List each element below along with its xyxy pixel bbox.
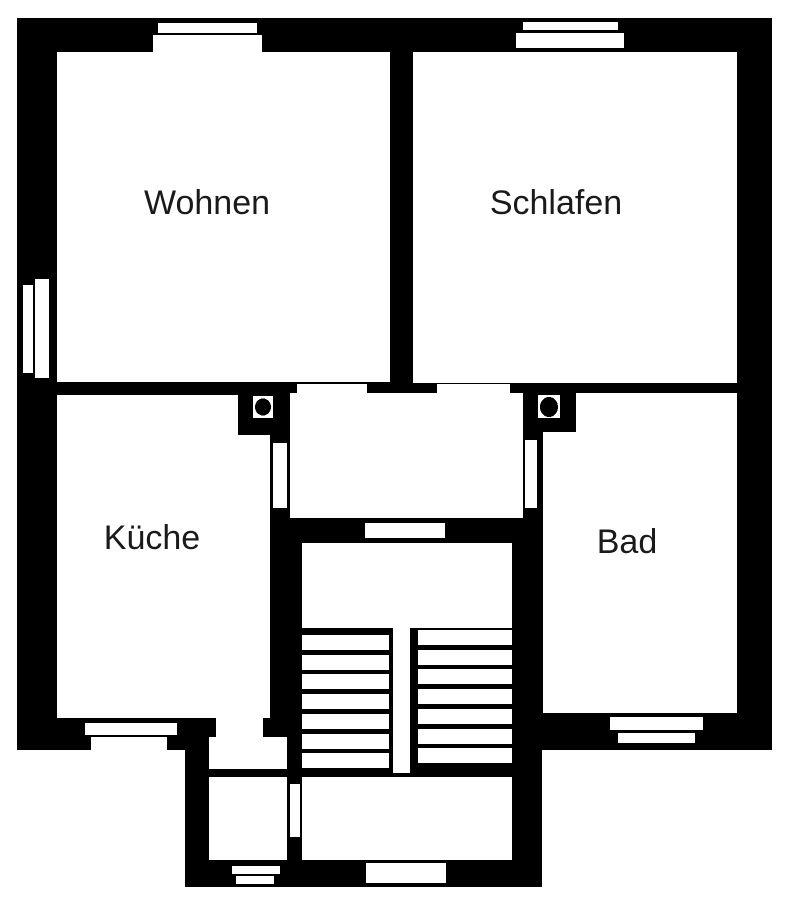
stair-flight-right-tread-1	[418, 630, 512, 645]
stair-flight-left-tread-7	[302, 753, 389, 768]
stair-flight-left-tread-2	[302, 655, 389, 670]
room-label-bad: Bad	[597, 523, 658, 561]
stair-upper-landing	[302, 543, 512, 628]
chimney-left-dot	[255, 399, 271, 416]
window-wohnen-top-inner	[153, 35, 262, 52]
room-label-kueche: Küche	[104, 519, 200, 557]
door-schlafen-hallway	[437, 384, 510, 393]
door-kueche-hallway	[273, 443, 287, 508]
window-bad-bottom-inner	[610, 717, 703, 730]
stair-flight-right-tread-4	[418, 689, 512, 704]
window-wohnen-left-outer	[23, 285, 33, 373]
door-kueche-vestibule	[216, 718, 263, 737]
window-vestibule-bottom-inner	[232, 866, 280, 874]
stair-flight-left-tread-3	[302, 674, 389, 689]
window-kueche-bottom-outer	[91, 737, 167, 751]
chimney-right-dot	[540, 397, 558, 417]
stair-flight-left-tread-5	[302, 714, 389, 729]
stair-flight-left-tread-6	[302, 734, 389, 749]
stair-flight-right-tread-7	[418, 748, 512, 763]
stair-flight-left-tread-1	[302, 635, 389, 650]
stair-lower-landing	[302, 777, 512, 860]
window-vestibule-bottom-outer	[236, 876, 274, 884]
vestibule-lower	[209, 777, 287, 860]
floor-plan-drawing: WohnenSchlafenKücheBad	[0, 0, 785, 900]
door-bad-hallway	[525, 440, 537, 508]
stair-flight-right-tread-5	[418, 709, 512, 724]
vestibule-upper	[209, 737, 287, 769]
floor-plan-page: WohnenSchlafenKücheBad	[0, 0, 785, 900]
stair-flight-right-tread-3	[418, 669, 512, 684]
door-hallway-stairs	[365, 523, 445, 538]
door-wohnen-hallway	[297, 384, 367, 394]
window-wohnen-top-outer	[158, 23, 257, 33]
stair-eye-strip	[393, 628, 410, 773]
hallway	[290, 393, 523, 518]
stair-flight-right-tread-6	[418, 729, 512, 744]
window-schlafen-top-outer	[523, 22, 618, 30]
room-label-schlafen: Schlafen	[490, 184, 622, 222]
door-vestibule-stairs	[290, 784, 300, 837]
entrance-opening	[366, 863, 446, 883]
window-schlafen-top-inner	[516, 33, 624, 48]
stair-flight-left-tread-4	[302, 694, 389, 709]
room-label-wohnen: Wohnen	[144, 184, 270, 222]
window-bad-bottom-outer	[618, 733, 695, 743]
stair-flight-right-tread-2	[418, 650, 512, 665]
window-kueche-bottom-inner	[85, 723, 177, 735]
window-wohnen-left-inner	[35, 279, 49, 378]
